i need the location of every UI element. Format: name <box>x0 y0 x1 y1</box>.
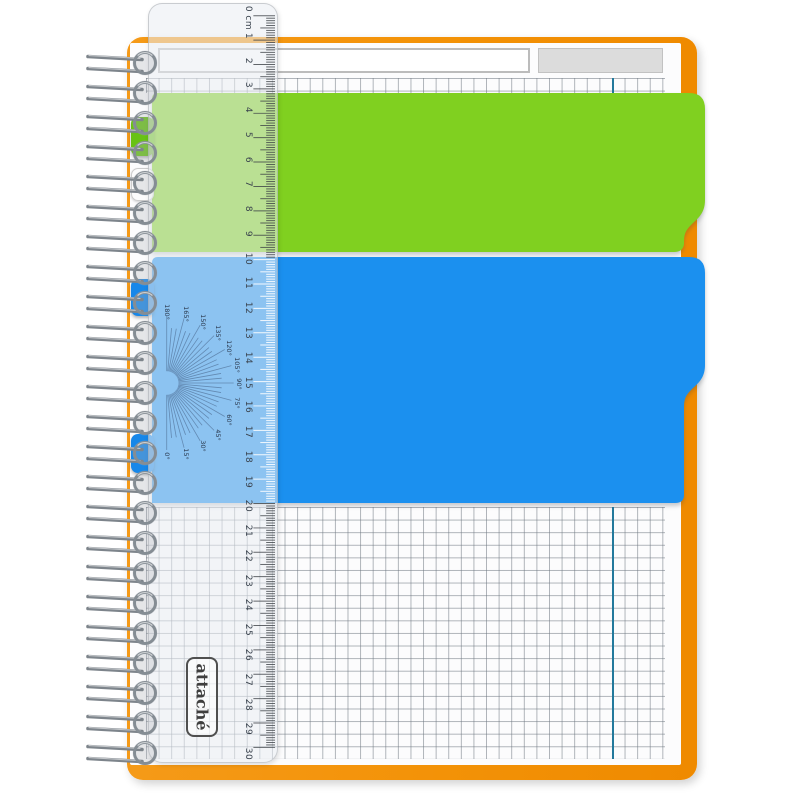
ruler-protractor-sheet: 0 cm123456789101112131415161718192021222… <box>148 3 278 763</box>
brand-logo-badge: attaché <box>186 657 218 737</box>
protractor-angle-label: 60° <box>225 414 233 426</box>
brand-logo-text: attaché <box>193 663 212 730</box>
protractor-angle-label: 90° <box>235 378 243 390</box>
protractor-angle-label: 15° <box>182 448 190 460</box>
protractor-angle-label: 75° <box>233 397 241 409</box>
protractor-angle-label: 120° <box>225 340 233 356</box>
margin-line-top <box>612 78 614 93</box>
margin-line-main <box>612 507 614 759</box>
protractor-angle-label: 45° <box>214 429 222 441</box>
protractor-labels: 180°165°150°135°120°105°90°75°60°45°30°1… <box>149 4 277 762</box>
header-tag-field <box>538 48 663 73</box>
protractor-angle-label: 150° <box>199 314 207 330</box>
protractor-angle-label: 165° <box>182 307 190 323</box>
protractor-angle-label: 30° <box>199 441 207 453</box>
product-photo-notebook: 0 cm123456789101112131415161718192021222… <box>0 0 800 800</box>
protractor-angle-label: 0° <box>163 452 171 459</box>
protractor-angle-label: 105° <box>233 358 241 374</box>
protractor-angle-label: 180° <box>163 304 171 320</box>
protractor-angle-label: 135° <box>214 325 222 341</box>
